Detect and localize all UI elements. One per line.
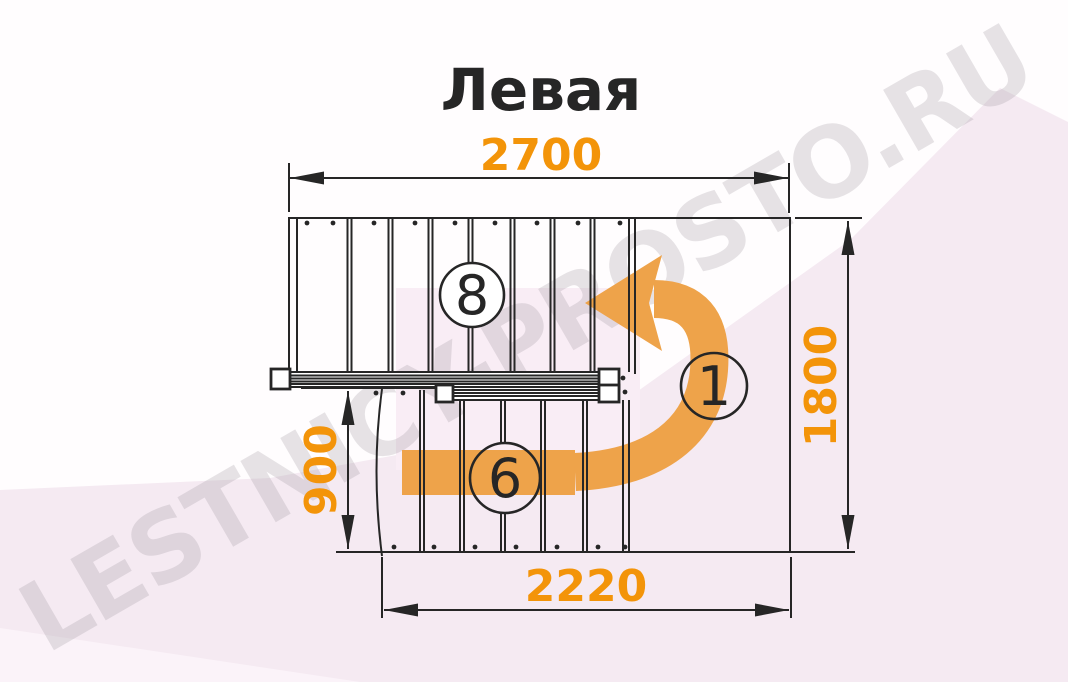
page-title: Левая: [441, 56, 642, 124]
balloon-upper-steps-value: 8: [455, 264, 489, 327]
balloon-landing-value: 1: [697, 355, 731, 418]
dimension-label-2220: 2220: [525, 561, 647, 612]
dimension-label-1800: 1800: [796, 325, 847, 447]
stair-plan-diagram: LESTNICY-PROSTO.RU: [0, 0, 1068, 682]
dimension-label-2700: 2700: [480, 130, 602, 181]
bar-cap-lower-left: [436, 385, 453, 402]
stair-plan-page: LESTNICY-PROSTO.RU: [0, 0, 1068, 682]
support-bar-lower: [438, 387, 618, 400]
bar-cap-upper-left: [271, 369, 290, 389]
dimension-label-900: 900: [296, 424, 347, 516]
bar-cap-lower-right: [599, 385, 619, 402]
balloon-lower-steps-value: 6: [488, 447, 522, 510]
